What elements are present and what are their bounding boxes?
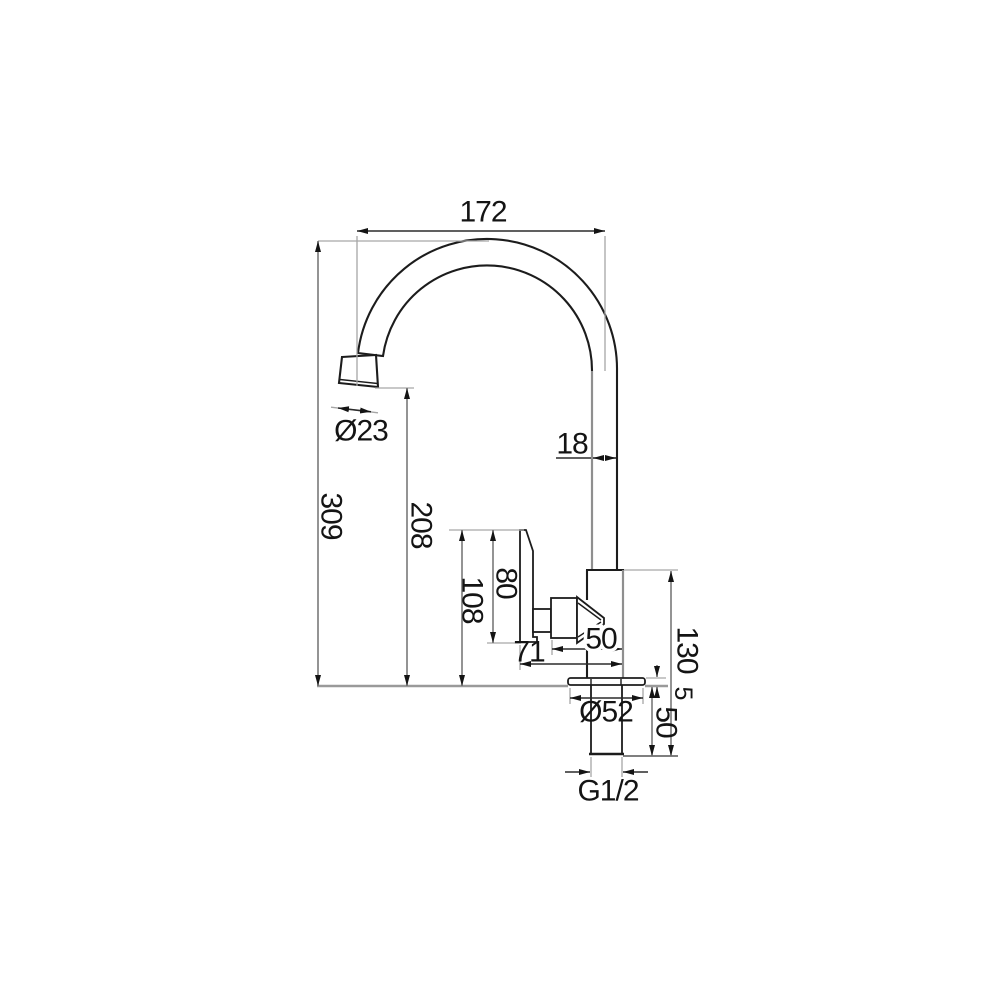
label-body-height: 130 (671, 626, 704, 673)
aerator-collar (339, 355, 378, 387)
faucet-dimension-drawing: 172 18 Ø23 309 208 108 80 71 50 130 5 50… (0, 0, 1001, 1001)
faucet-outline (317, 239, 668, 754)
label-shank-length: 50 (650, 706, 683, 738)
label-spout-tube: 18 (556, 428, 588, 461)
technical-drawing-page: 172 18 Ø23 309 208 108 80 71 50 130 5 50… (0, 0, 1001, 1001)
base-flange (568, 678, 645, 685)
spout-arc (358, 239, 617, 371)
dimension-labels: 172 18 Ø23 309 208 108 80 71 50 130 5 50… (315, 196, 704, 808)
lever-stem (533, 609, 551, 632)
label-lever-reach: 71 (513, 636, 545, 669)
label-spout-reach: 172 (459, 196, 506, 229)
label-height-overall: 309 (315, 492, 348, 539)
label-flange-thickness: 5 (669, 687, 697, 700)
label-lever-top: 80 (490, 567, 523, 599)
label-aerator-diameter: Ø23 (334, 415, 388, 448)
label-height-outlet: 208 (405, 501, 438, 548)
label-lever-overall: 108 (456, 576, 489, 623)
label-inlet-thread: G1/2 (577, 775, 638, 808)
valve-block (551, 598, 577, 638)
dim-line-o23 (338, 408, 371, 412)
label-base-diameter: Ø52 (579, 696, 633, 729)
label-valve-reach: 50 (585, 623, 617, 656)
